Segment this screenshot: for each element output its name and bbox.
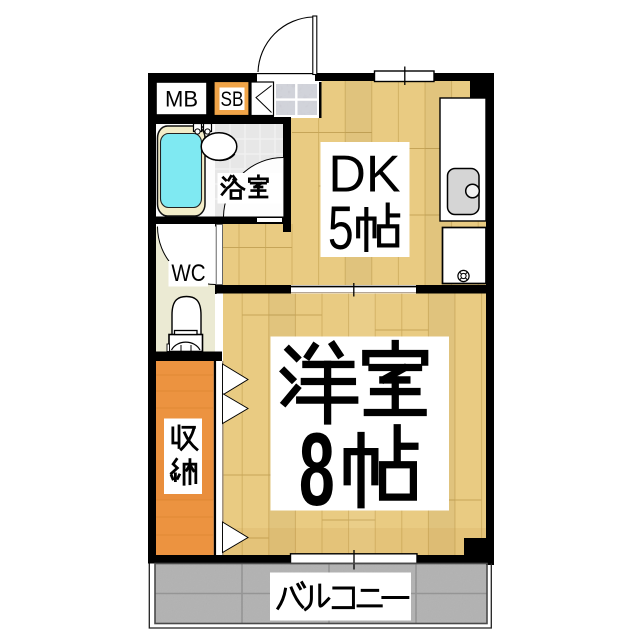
svg-text:MB: MB <box>165 87 198 112</box>
svg-text:5: 5 <box>328 195 354 263</box>
svg-text:WC: WC <box>171 259 205 286</box>
svg-text:SB: SB <box>221 89 244 112</box>
svg-text:8: 8 <box>299 412 335 527</box>
